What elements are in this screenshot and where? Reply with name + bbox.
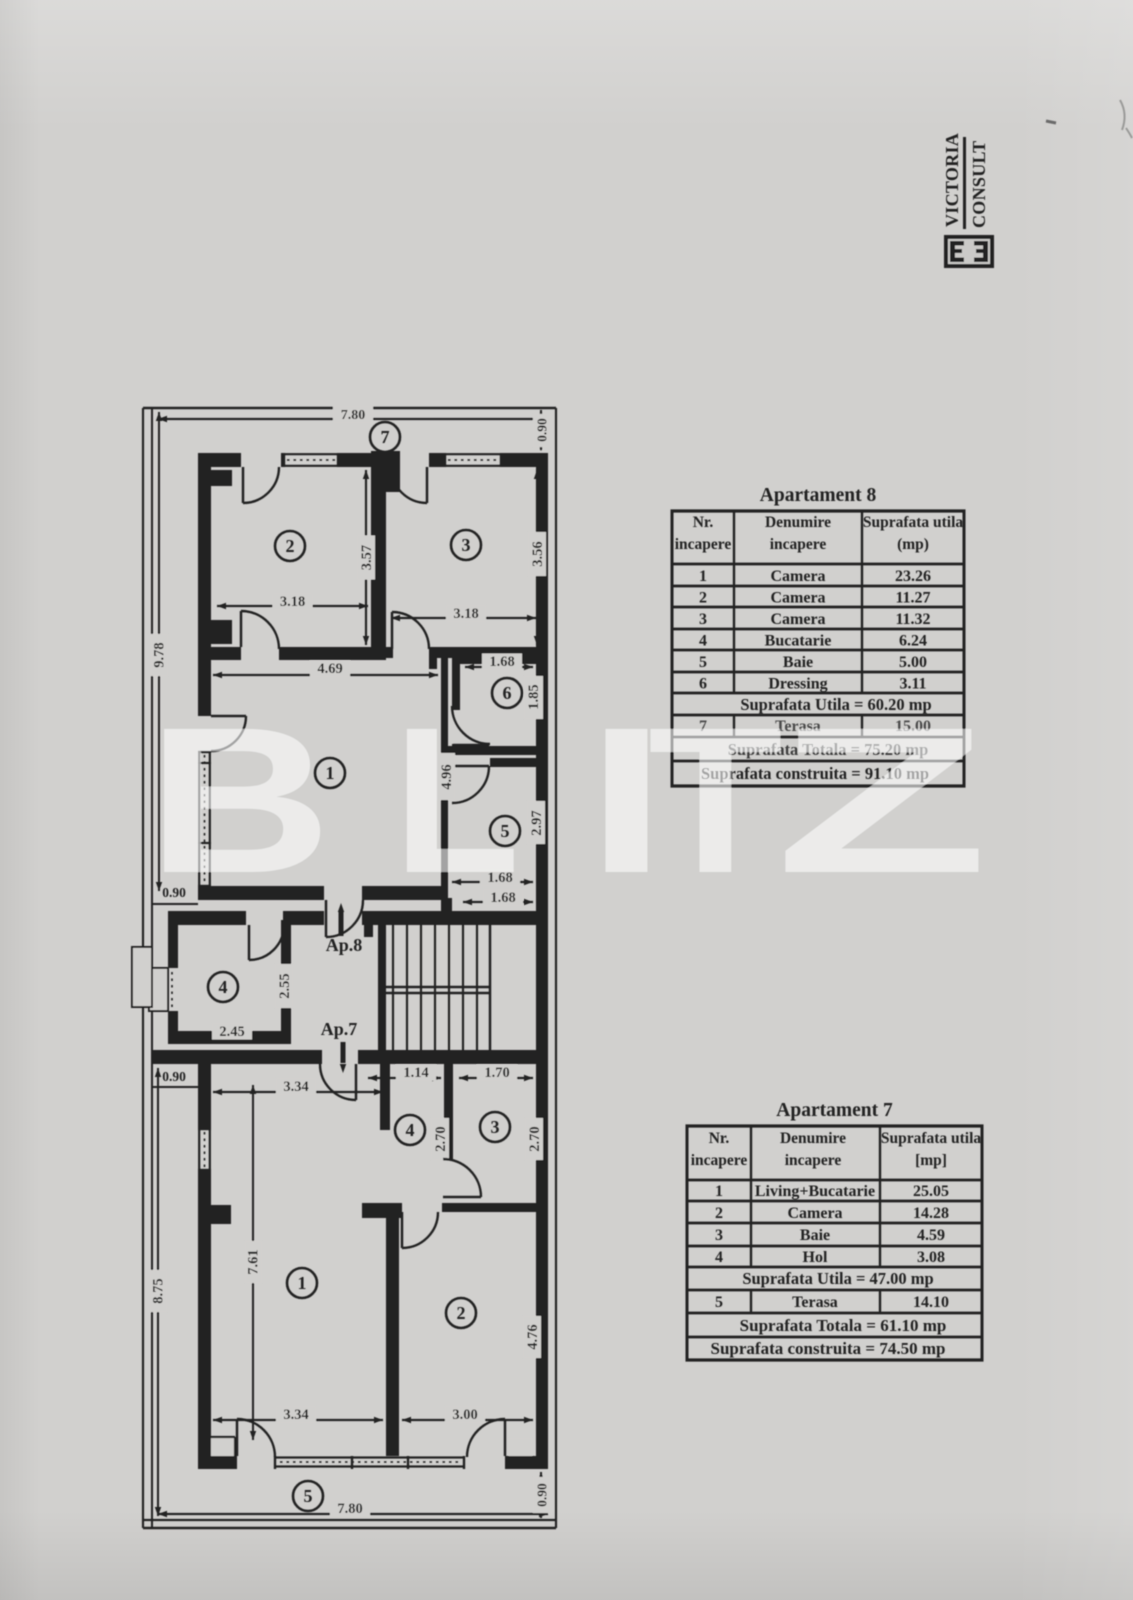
svg-text:3.00: 3.00 xyxy=(452,1407,477,1423)
svg-text:CONSULT: CONSULT xyxy=(969,141,989,228)
svg-text:1.68: 1.68 xyxy=(489,654,514,670)
svg-text:Camera: Camera xyxy=(770,590,825,607)
svg-text:4.76: 4.76 xyxy=(525,1324,541,1349)
svg-text:2.97: 2.97 xyxy=(529,810,545,835)
svg-text:L: L xyxy=(393,685,520,917)
svg-text:2.70: 2.70 xyxy=(433,1126,449,1151)
svg-text:4: 4 xyxy=(699,633,707,650)
svg-text:Terasa: Terasa xyxy=(792,1294,838,1311)
svg-text:2: 2 xyxy=(457,1303,466,1323)
svg-text:4: 4 xyxy=(406,1120,415,1140)
svg-text:Z: Z xyxy=(775,684,988,916)
svg-text:Apartament 8: Apartament 8 xyxy=(760,485,877,506)
svg-text:0.90: 0.90 xyxy=(535,418,550,442)
svg-text:1.14: 1.14 xyxy=(403,1065,428,1081)
svg-text:5: 5 xyxy=(304,1486,313,1506)
svg-text:8.75: 8.75 xyxy=(151,1278,167,1303)
svg-text:5: 5 xyxy=(699,654,707,671)
svg-text:Suprafata utila: Suprafata utila xyxy=(881,1130,982,1147)
svg-text:3.18: 3.18 xyxy=(453,606,478,622)
svg-text:3: 3 xyxy=(462,535,471,555)
svg-text:B: B xyxy=(147,685,332,917)
svg-text:3.08: 3.08 xyxy=(917,1249,945,1266)
svg-text:14.28: 14.28 xyxy=(913,1205,949,1222)
svg-text:Hol: Hol xyxy=(803,1249,828,1266)
svg-text:1.70: 1.70 xyxy=(484,1065,509,1081)
svg-text:Suprafata utila: Suprafata utila xyxy=(863,514,964,531)
svg-text:3: 3 xyxy=(491,1117,500,1137)
svg-text:0.90: 0.90 xyxy=(162,1069,186,1084)
svg-text:incapere: incapere xyxy=(675,536,732,553)
svg-text:Nr.: Nr. xyxy=(709,1130,730,1147)
svg-text:Baie: Baie xyxy=(800,1227,830,1244)
svg-text:2.55: 2.55 xyxy=(277,973,293,998)
svg-text:11.32: 11.32 xyxy=(895,611,930,628)
svg-text:7: 7 xyxy=(381,427,390,447)
svg-text:3: 3 xyxy=(715,1227,723,1244)
svg-text:4: 4 xyxy=(715,1249,723,1266)
svg-text:Suprafata construita = 74.50: Suprafata construita = 74.50 mp xyxy=(711,1339,946,1358)
svg-text:6.24: 6.24 xyxy=(899,633,927,650)
svg-text:3.57: 3.57 xyxy=(359,545,375,570)
svg-text:T: T xyxy=(648,685,783,917)
svg-text:Suprafata Totala = 61.10 mp: Suprafata Totala = 61.10 mp xyxy=(740,1316,947,1335)
svg-text:4.59: 4.59 xyxy=(917,1227,945,1244)
svg-text:VICTORIA: VICTORIA xyxy=(942,133,962,227)
svg-text:1.85: 1.85 xyxy=(526,684,542,709)
svg-text:Ap.8: Ap.8 xyxy=(326,935,363,955)
svg-text:4: 4 xyxy=(219,977,228,997)
svg-text:3: 3 xyxy=(699,611,707,628)
svg-text:incapere: incapere xyxy=(785,1152,842,1169)
svg-text:incapere: incapere xyxy=(691,1152,748,1169)
svg-text:25.05: 25.05 xyxy=(913,1183,949,1200)
svg-text:2.70: 2.70 xyxy=(527,1126,543,1151)
svg-text:[mp]: [mp] xyxy=(915,1152,947,1169)
svg-text:Denumire: Denumire xyxy=(765,514,831,531)
svg-text:7.80: 7.80 xyxy=(341,408,366,423)
svg-text:Living+Bucatarie: Living+Bucatarie xyxy=(755,1183,875,1200)
svg-text:0.90: 0.90 xyxy=(535,1483,550,1507)
svg-text:7.80: 7.80 xyxy=(337,1501,362,1517)
svg-text:Nr.: Nr. xyxy=(693,514,714,531)
svg-text:Bucatarie: Bucatarie xyxy=(765,633,832,650)
svg-text:3.34: 3.34 xyxy=(283,1079,308,1095)
svg-text:1: 1 xyxy=(715,1183,723,1200)
svg-text:3.34: 3.34 xyxy=(283,1407,308,1423)
svg-text:11.27: 11.27 xyxy=(895,590,930,607)
svg-text:Apartament 7: Apartament 7 xyxy=(776,1100,893,1121)
svg-text:Camera: Camera xyxy=(770,568,825,585)
svg-text:2: 2 xyxy=(715,1205,723,1222)
svg-text:Camera: Camera xyxy=(787,1205,842,1222)
svg-text:(mp): (mp) xyxy=(897,536,929,553)
svg-text:5.00: 5.00 xyxy=(899,654,927,671)
svg-text:2: 2 xyxy=(286,536,295,556)
svg-text:2.45: 2.45 xyxy=(219,1024,244,1040)
svg-text:3.56: 3.56 xyxy=(530,541,546,566)
svg-text:Suprafata Utila = 47.00 mp: Suprafata Utila = 47.00 mp xyxy=(742,1269,933,1288)
svg-text:Camera: Camera xyxy=(770,611,825,628)
svg-text:3.18: 3.18 xyxy=(280,594,305,610)
svg-text:2: 2 xyxy=(699,590,707,607)
svg-text:Baie: Baie xyxy=(783,654,813,671)
svg-text:Ap.7: Ap.7 xyxy=(321,1019,358,1039)
svg-text:1: 1 xyxy=(298,1273,307,1293)
svg-text:4.69: 4.69 xyxy=(317,661,342,677)
svg-text:1: 1 xyxy=(699,568,707,585)
svg-text:5: 5 xyxy=(715,1294,723,1311)
svg-text:incapere: incapere xyxy=(770,536,827,553)
svg-text:9.78: 9.78 xyxy=(152,642,168,667)
svg-text:Denumire: Denumire xyxy=(780,1130,846,1147)
svg-text:7.61: 7.61 xyxy=(246,1249,262,1274)
svg-text:23.26: 23.26 xyxy=(895,568,931,585)
svg-text:14.10: 14.10 xyxy=(913,1294,949,1311)
